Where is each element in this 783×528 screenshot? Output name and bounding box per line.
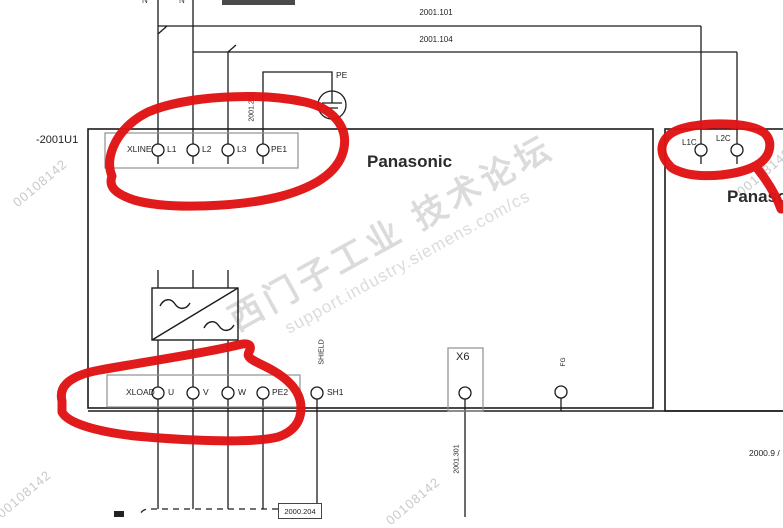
red-circle-xline bbox=[110, 97, 345, 207]
red-circle-tail bbox=[757, 168, 781, 209]
red-annotations bbox=[0, 0, 783, 517]
red-circle-xload bbox=[61, 344, 301, 441]
